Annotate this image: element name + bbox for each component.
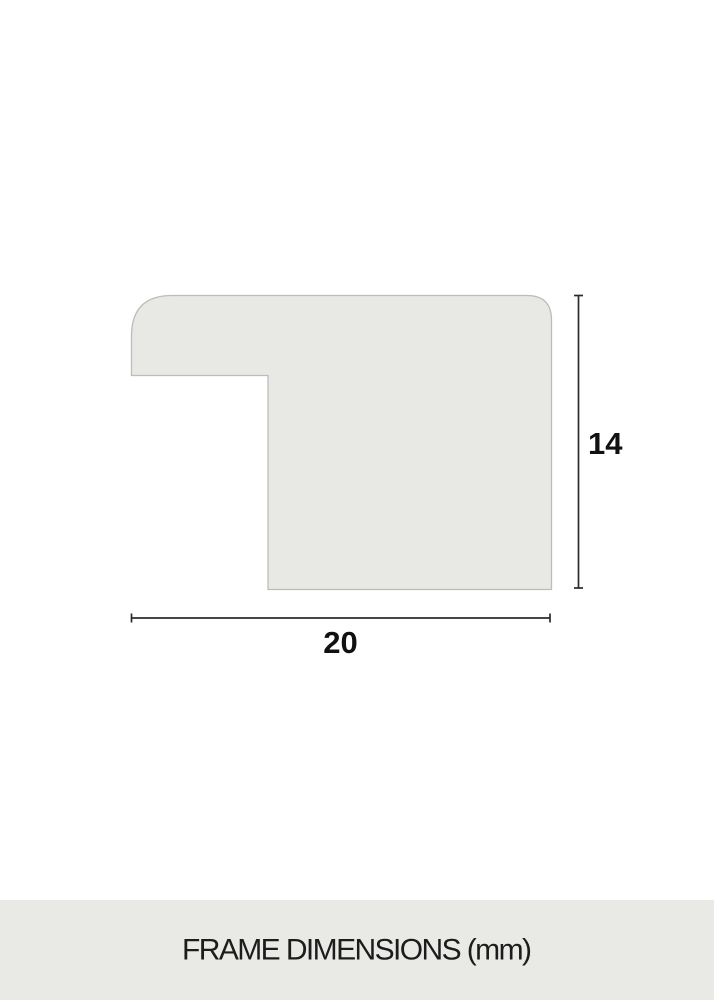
- svg-text:14: 14: [588, 426, 623, 461]
- svg-text:FRAME DIMENSIONS (mm): FRAME DIMENSIONS (mm): [182, 934, 532, 967]
- svg-text:20: 20: [323, 625, 357, 660]
